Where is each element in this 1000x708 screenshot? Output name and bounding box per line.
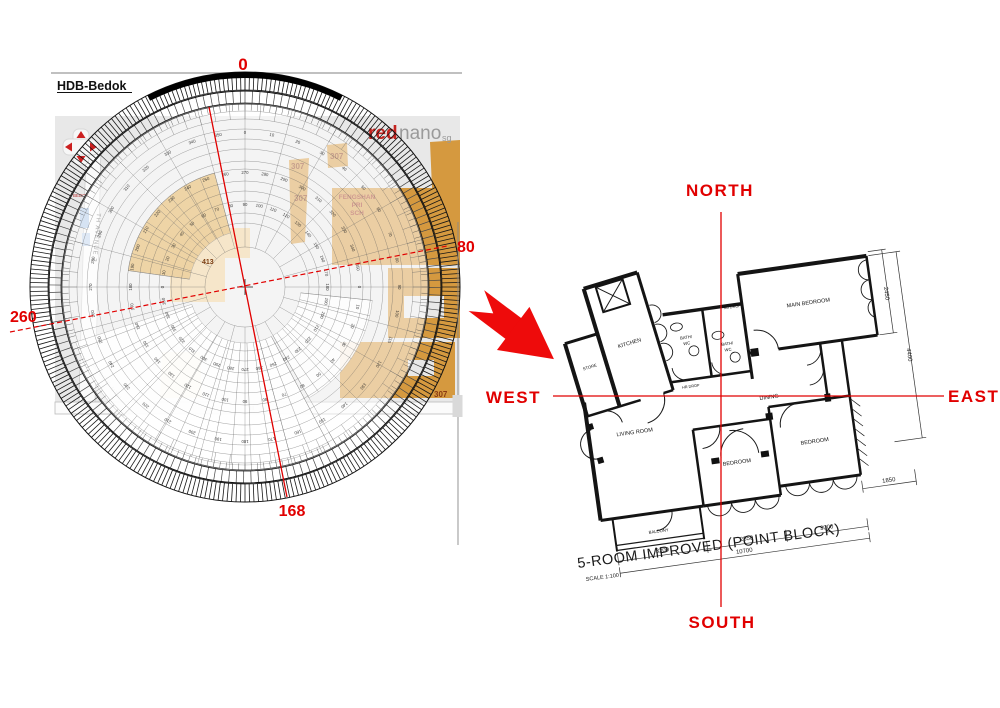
- bath1-label-1: BATH/: [680, 334, 693, 341]
- kitchen-door-arc: [641, 393, 671, 423]
- svg-text:90: 90: [243, 202, 248, 207]
- dim-1850: 1850: [882, 477, 897, 485]
- bearing-label-168: 168: [279, 503, 306, 520]
- svg-text:180: 180: [128, 283, 133, 291]
- dim-4400: 4400: [905, 348, 913, 363]
- bath1-label-2: WC: [683, 340, 691, 346]
- kitchen-label: KITCHEN: [617, 337, 642, 350]
- store-label: STORE: [582, 362, 597, 371]
- direction-overlay: NORTH SOUTH EAST WEST: [486, 181, 999, 632]
- logo-sg: sg: [442, 133, 452, 143]
- composite-diagram: HDB-Bedok 307 307 307 307 FENGSHAN PRI S…: [0, 0, 1000, 708]
- north-label: NORTH: [686, 181, 754, 200]
- bedroom1-windows: [708, 495, 781, 517]
- bedroom1-label: BEDROOM: [722, 458, 751, 468]
- svg-text:90: 90: [242, 399, 247, 404]
- living-label: LIVING ROOM: [616, 427, 654, 438]
- bath2-label-1: BATH/: [721, 340, 734, 347]
- svg-text:270: 270: [88, 283, 93, 291]
- block-label-413: 413: [202, 259, 214, 266]
- svg-text:270: 270: [241, 367, 249, 372]
- floorplan: KITCHEN STORE: [534, 234, 939, 583]
- bearing-label-80: 80: [457, 239, 475, 256]
- plan-scale: SCALE 1:100: [585, 573, 619, 583]
- logo-nano: nano: [399, 123, 441, 144]
- west-label: WEST: [486, 388, 541, 407]
- svg-text:90: 90: [397, 285, 402, 290]
- main-bedroom-label: MAIN BEDROOM: [786, 297, 831, 309]
- map-title: HDB-Bedok: [57, 79, 126, 93]
- transfer-arrow-icon: [456, 276, 570, 381]
- map-gray-strip: [453, 395, 463, 417]
- bedroom2-windows: [786, 475, 859, 497]
- east-label: EAST: [948, 387, 999, 406]
- dim-2450: 2450: [882, 287, 890, 302]
- bath2-label-2: WC: [724, 347, 732, 353]
- bedroom2-label: BEDROOM: [800, 437, 829, 447]
- entrance-door-arcs: [717, 427, 758, 458]
- svg-text:180: 180: [241, 439, 249, 444]
- bearing-label-260: 260: [10, 309, 37, 326]
- south-label: SOUTH: [689, 613, 756, 632]
- balcony-label: BALCONY: [648, 527, 669, 535]
- svg-text:180: 180: [325, 283, 330, 291]
- dining-label: DINING: [759, 393, 779, 402]
- building-topright: [430, 140, 460, 188]
- svg-text:270: 270: [241, 170, 249, 175]
- bearing-label-0: 0: [238, 55, 247, 74]
- screenshot-stage: HDB-Bedok 307 307 307 307 FENGSHAN PRI S…: [0, 0, 1000, 708]
- block-label-307d: 307: [434, 390, 448, 399]
- hr-drop-label: HR DROP: [682, 383, 700, 389]
